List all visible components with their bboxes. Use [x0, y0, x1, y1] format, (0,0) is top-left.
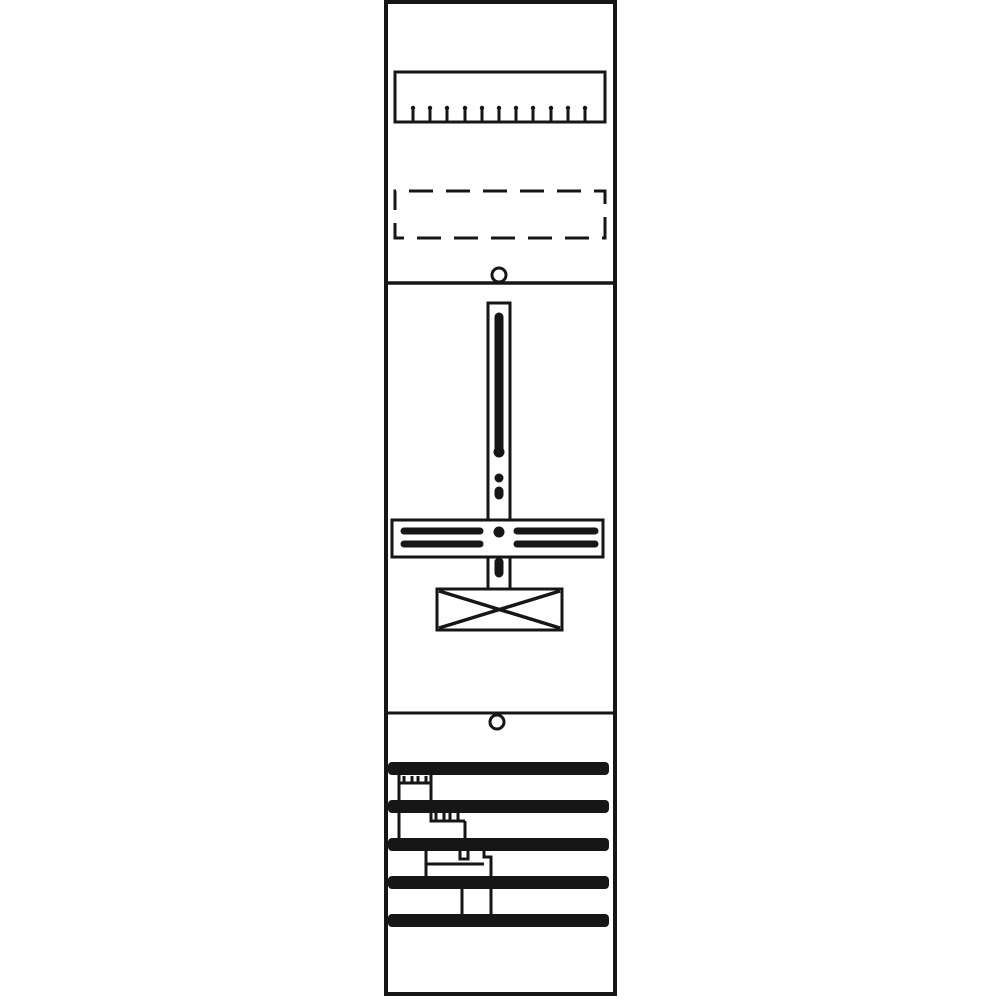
ruler-tick-head — [428, 106, 432, 110]
ruler-tick-head — [514, 106, 518, 110]
ruler-tick-head — [445, 106, 449, 110]
busbar-3 — [388, 838, 609, 851]
rail-slot-end-bulge — [494, 447, 505, 458]
busbar-4 — [388, 876, 609, 889]
rail-dot — [495, 474, 504, 483]
meter-panel-diagram — [0, 0, 1000, 1000]
crossbar-center-dot — [494, 527, 505, 538]
busbar-5 — [388, 914, 609, 927]
ruler-tick-head — [463, 106, 467, 110]
ruler-tick-head — [411, 106, 415, 110]
ruler-tick-head — [497, 106, 501, 110]
busbar-2 — [388, 800, 609, 813]
ruler-tick-head — [480, 106, 484, 110]
busbar-1 — [388, 762, 609, 775]
ruler-tick-head — [531, 106, 535, 110]
ruler-tick-head — [583, 106, 587, 110]
screw-hole-bottom — [490, 715, 504, 729]
screw-hole-top — [492, 268, 506, 282]
scan-page — [0, 0, 1000, 1000]
ruler-tick-head — [549, 106, 553, 110]
ruler-tick-head — [566, 106, 570, 110]
